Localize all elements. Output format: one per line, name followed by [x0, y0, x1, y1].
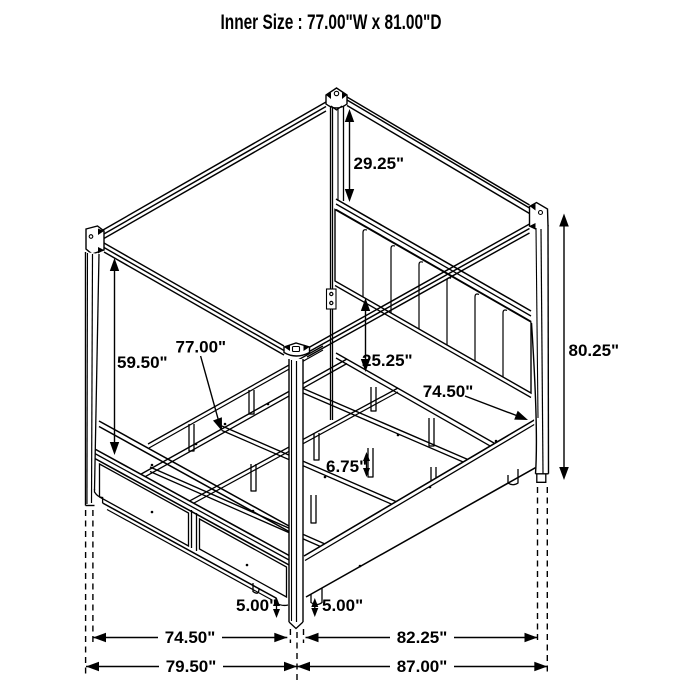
svg-text:82.25": 82.25" [397, 628, 448, 647]
svg-text:87.00": 87.00" [397, 657, 448, 676]
svg-text:6.75": 6.75" [326, 457, 367, 476]
svg-text:77.00": 77.00" [176, 338, 227, 357]
svg-text:80.25": 80.25" [569, 341, 620, 360]
svg-text:74.50": 74.50" [165, 628, 216, 647]
svg-text:5.00": 5.00" [236, 596, 277, 615]
svg-text:59.50": 59.50" [117, 353, 168, 372]
svg-text:5.00": 5.00" [322, 596, 363, 615]
svg-text:25.25": 25.25" [362, 351, 413, 370]
svg-text:Inner Size : 77.00"W x 81.00"D: Inner Size : 77.00"W x 81.00"D [221, 11, 442, 34]
svg-text:79.50": 79.50" [166, 657, 217, 676]
svg-text:29.25": 29.25" [354, 154, 405, 173]
svg-text:74.50": 74.50" [423, 382, 474, 401]
